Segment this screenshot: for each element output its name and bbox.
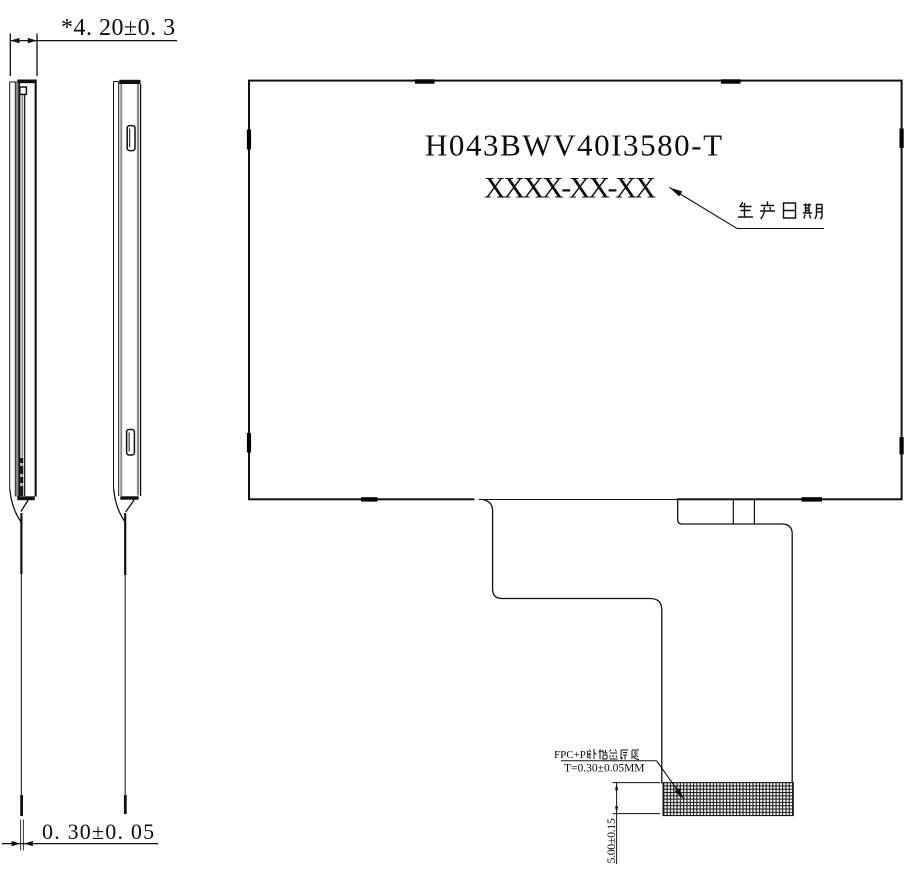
svg-text:5.00±0.15: 5.00±0.15	[604, 818, 618, 863]
svg-text:T=0.30±0.05MM: T=0.30±0.05MM	[564, 763, 645, 775]
svg-text:H043BWV40I3580-T: H043BWV40I3580-T	[425, 128, 724, 163]
svg-text:*4. 20±0. 3: *4. 20±0. 3	[61, 15, 176, 41]
svg-text:XXXX-XX-XX: XXXX-XX-XX	[484, 172, 656, 205]
svg-text:FPC+PI: FPC+PI	[554, 749, 590, 761]
svg-text:0. 30±0. 05: 0. 30±0. 05	[42, 819, 155, 844]
